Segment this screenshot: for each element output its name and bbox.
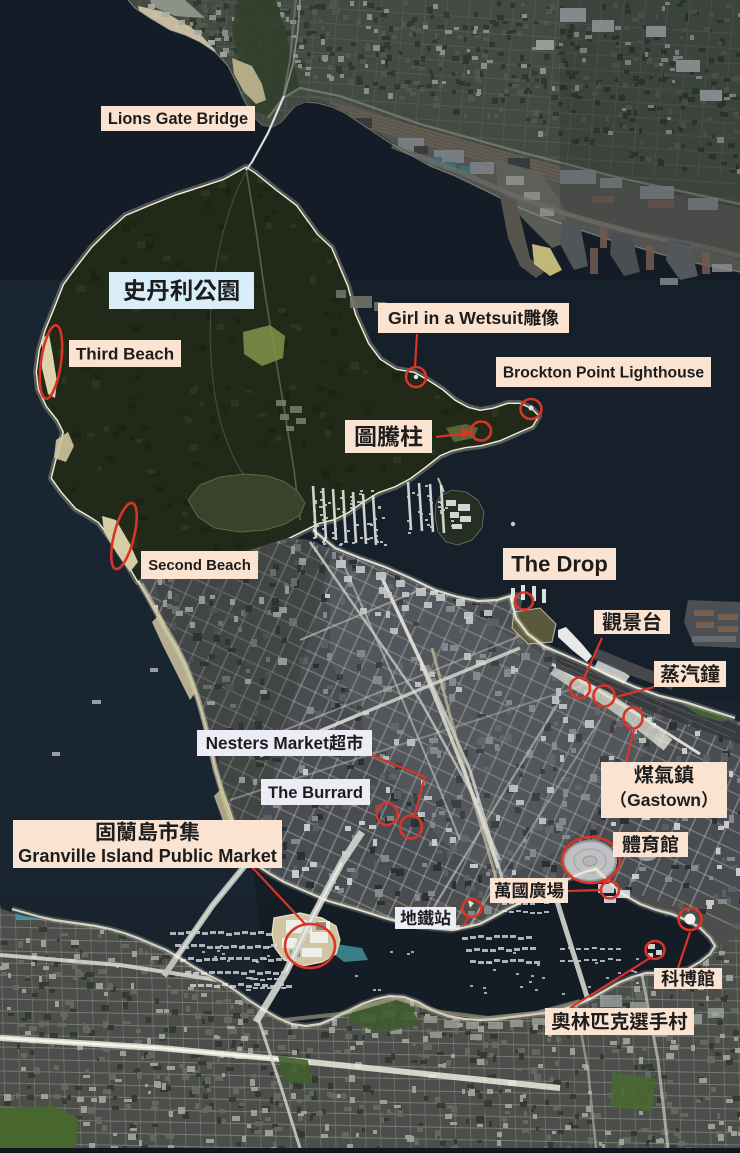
svg-text:Nesters Market: Nesters Market [206,733,330,753]
svg-text:Gastown: Gastown [627,790,701,810]
svg-text:Granville Island Public Market: Granville Island Public Market [18,846,277,866]
svg-text:The Drop: The Drop [511,552,608,577]
svg-text:Second Beach: Second Beach [148,558,251,574]
svg-text:Brockton Point Lighthouse: Brockton Point Lighthouse [503,365,705,382]
svg-text:Third Beach: Third Beach [76,344,174,363]
svg-text:Lions Gate Bridge: Lions Gate Bridge [108,110,248,128]
svg-text:The Burrard: The Burrard [268,783,363,802]
svg-text:Girl in a Wetsuit: Girl in a Wetsuit [388,308,523,328]
